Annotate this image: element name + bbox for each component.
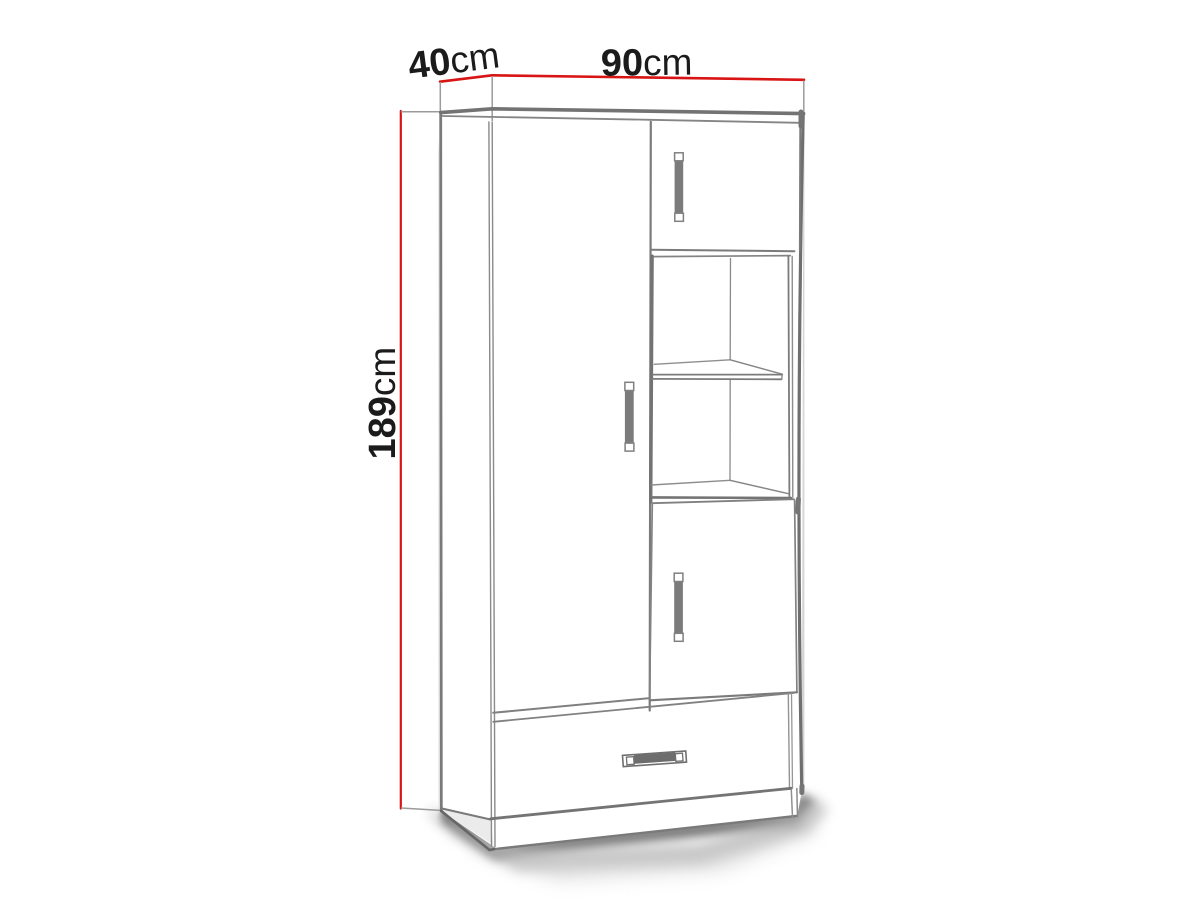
svg-text:90cm: 90cm xyxy=(601,42,693,85)
svg-text:189cm: 189cm xyxy=(362,347,404,460)
svg-text:40cm: 40cm xyxy=(406,34,502,87)
